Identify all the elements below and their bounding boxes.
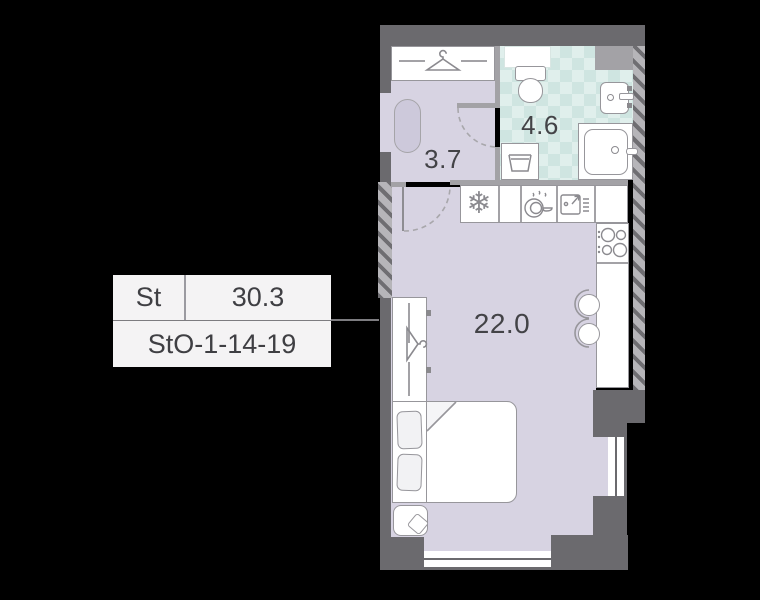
partition-bath-left-upper — [495, 46, 500, 103]
bar-stool-1 — [578, 294, 600, 316]
toilet-niche — [504, 46, 551, 68]
unit-type-cell[interactable]: St — [113, 275, 184, 320]
pillow-2 — [396, 454, 422, 492]
entry-door-opening — [380, 93, 391, 152]
partition-bath-stub — [457, 103, 500, 108]
sink-mount-top — [627, 86, 632, 91]
unit-area-label: 30.3 — [232, 282, 285, 313]
unit-code-label: StO-1-14-19 — [148, 329, 297, 360]
hanger-icon — [424, 49, 462, 75]
window-bottom-pane-1 — [424, 551, 551, 558]
bar-stool-2 — [578, 323, 600, 345]
wall-left-lower — [380, 298, 391, 570]
wardrobe-handle-top — [426, 310, 431, 316]
kitchen-sink-icon — [558, 187, 592, 221]
bed-mattress — [426, 401, 517, 503]
bathroom-area-label: 4.6 — [510, 110, 570, 141]
wall-right-below-window — [593, 496, 627, 537]
shower-tray-inner — [584, 129, 628, 175]
wardrobe-handle-bottom — [426, 367, 431, 373]
floor-window-tongue — [424, 537, 551, 551]
wall-bottom-left — [380, 537, 424, 570]
wall-left-upper — [380, 46, 391, 93]
card-divider — [184, 275, 186, 320]
window-bottom-pane-2 — [424, 560, 551, 567]
wall-left-hatched — [378, 182, 392, 298]
hallway-area-label: 3.7 — [413, 144, 473, 175]
bath-sink-drain — [607, 94, 614, 101]
kitchen-seam-1 — [498, 186, 500, 222]
fridge-icon: ❄ — [462, 187, 496, 221]
wardrobe-hanger-icon — [402, 325, 428, 363]
window-right-pane-2 — [617, 437, 624, 496]
unit-code-cell[interactable]: StO-1-14-19 — [113, 321, 331, 367]
wall-right-step — [593, 423, 627, 437]
bath-sink-tap — [619, 93, 634, 100]
kitchen-seam-4 — [594, 186, 596, 222]
shower-drain — [611, 146, 619, 154]
living-area-label: 22.0 — [462, 308, 542, 340]
wall-right-block — [593, 390, 645, 423]
floorplan-canvas: ❄ — [0, 0, 760, 600]
pillow-1 — [396, 411, 422, 450]
wall-top — [380, 25, 645, 46]
toilet-bowl — [518, 78, 543, 103]
unit-type-label: St — [136, 282, 162, 313]
sink-mount-bottom — [627, 103, 632, 108]
wall-bottom-right — [551, 535, 628, 570]
partition-bath-left-lower — [495, 147, 500, 180]
kitchen-seam-5 — [597, 262, 628, 264]
wall-left-mid — [380, 152, 391, 182]
vent-shaft — [595, 46, 633, 70]
window-right-pane-1 — [608, 437, 615, 496]
unit-area-cell[interactable]: 30.3 — [185, 275, 331, 320]
closet-rail-right — [461, 60, 487, 62]
hall-door-leaf — [402, 187, 404, 231]
wardrobe-rail-bottom — [408, 362, 410, 396]
cooktop-icon — [596, 223, 629, 262]
floor-right-strip — [593, 437, 608, 496]
dishwasher-icon — [522, 187, 554, 221]
wall-right-hatched — [633, 46, 645, 390]
laundry-tub-icon — [507, 150, 533, 174]
shower-tap — [626, 148, 638, 155]
closet-rail-left — [399, 60, 425, 62]
